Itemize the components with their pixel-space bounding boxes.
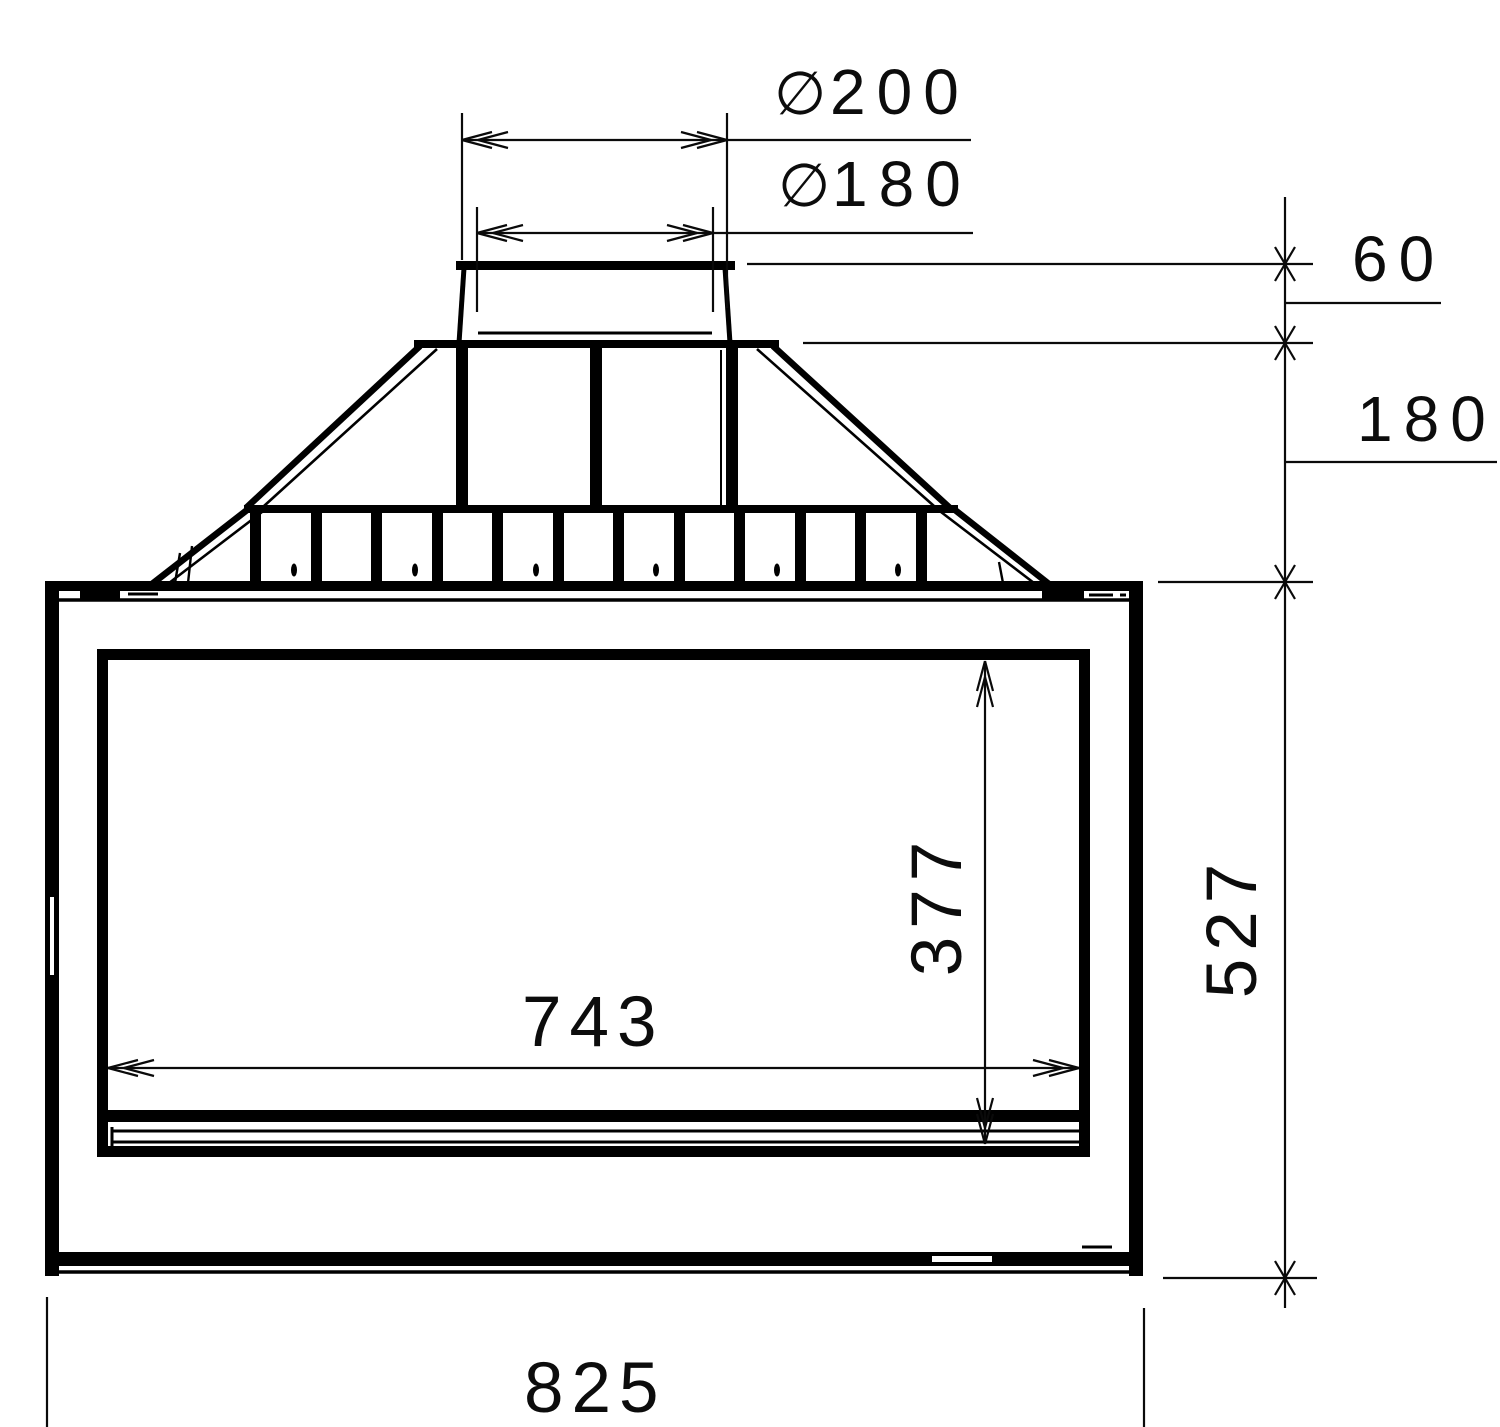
hood-right-slope-outer (773, 346, 950, 508)
grille-bar (492, 513, 503, 583)
body-right-edge (1129, 581, 1143, 1276)
hood-bar-center (590, 348, 602, 507)
collar-left-side (459, 268, 464, 343)
dim-glass-height: 377 (898, 661, 993, 1144)
grille-bar (674, 513, 685, 583)
dim-label-body-height: 527 (1193, 856, 1272, 998)
dim-label-glass-height: 377 (898, 834, 977, 976)
top-plate (45, 581, 1143, 600)
hood-left-slope-inner (264, 349, 437, 506)
grille-bar (855, 513, 866, 583)
flue-collar (456, 261, 735, 343)
grille-dot (533, 564, 539, 577)
grille-bar (250, 513, 261, 583)
grille-bar (432, 513, 443, 583)
dim-label-hood-height: 180 (1357, 383, 1497, 455)
hood-right-slope-inner (757, 349, 934, 506)
hood-bar-left (456, 348, 468, 507)
body-left-hinge-slit (50, 897, 54, 975)
grille-bar (371, 513, 382, 583)
hood-left-slope-outer (246, 346, 420, 508)
top-plate-left-tab (80, 591, 120, 599)
grille-bar (916, 513, 927, 583)
grille-bar (795, 513, 806, 583)
glass-bottom-edge (108, 1110, 1079, 1122)
dim-label-glass-width: 743 (522, 983, 664, 1062)
grille-dot (895, 564, 901, 577)
grille-dot (291, 564, 297, 577)
hood-top-edge (414, 340, 779, 348)
band-left-slope-outer (152, 510, 247, 584)
drawing-canvas: ∅ 200 ∅ 180 60 180 527 377 (0, 0, 1500, 1427)
air-grille-band (152, 510, 1049, 584)
grille-bar (734, 513, 745, 583)
fireplace-front-elevation: ∅ 200 ∅ 180 60 180 527 377 (0, 0, 1500, 1427)
band-right-slope-inner (941, 512, 1034, 583)
dim-label-collar-height: 60 (1352, 223, 1445, 295)
body-bottom-notch (932, 1256, 992, 1262)
grille-dot (774, 564, 780, 577)
diameter-symbol: ∅ (778, 151, 830, 221)
band-left-slope-inner (169, 512, 262, 583)
top-plate-edge (45, 581, 1143, 591)
hood-bar-right (726, 348, 738, 507)
band-right-foot-tick (999, 562, 1003, 583)
dim-overall-width: 825 (47, 1297, 1144, 1427)
dim-label-overall-width: 825 (524, 1349, 666, 1427)
top-plate-right-tab (1042, 591, 1084, 599)
hood-bottom-edge (244, 505, 958, 513)
grille-dot (653, 564, 659, 577)
dim-label-flue-inner: 180 (832, 148, 972, 220)
grille-bar (311, 513, 322, 583)
collar-top-edge (456, 261, 735, 270)
grille-bar (553, 513, 564, 583)
dim-glass-width: 743 (108, 983, 1079, 1076)
hood (244, 340, 958, 513)
dim-label-flue-outer: 200 (830, 56, 970, 128)
grille-bar (613, 513, 624, 583)
diameter-symbol: ∅ (774, 59, 826, 129)
grille-dot (412, 564, 418, 577)
